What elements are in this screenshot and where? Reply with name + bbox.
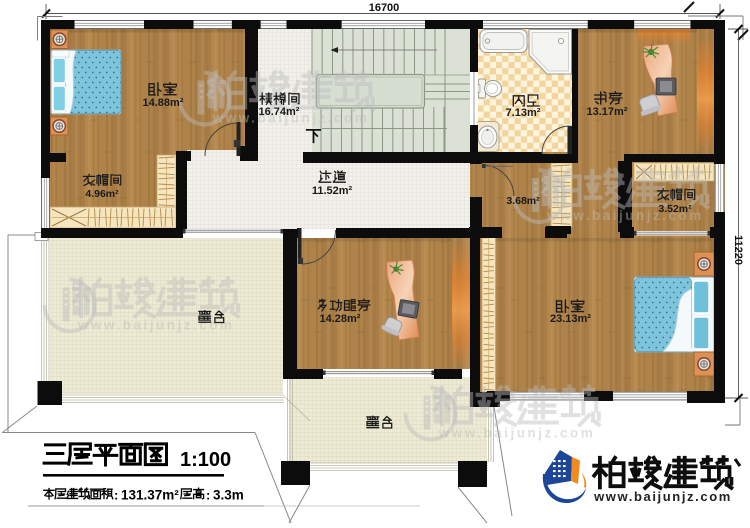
svg-text::: :: [206, 488, 210, 503]
svg-text:23.13m²: 23.13m²: [550, 313, 591, 325]
svg-text:1:100: 1:100: [180, 449, 231, 471]
svg-text:www.baijunjz.com: www.baijunjz.com: [593, 489, 732, 504]
svg-text:11220: 11220: [732, 235, 744, 265]
svg-text:3.3m: 3.3m: [213, 488, 244, 503]
svg-text:www.baijunjz.com: www.baijunjz.com: [438, 426, 596, 441]
svg-text:16700: 16700: [369, 2, 400, 14]
svg-text:14.28m²: 14.28m²: [320, 313, 361, 325]
svg-text:3.52m²: 3.52m²: [658, 203, 692, 215]
svg-text:131.37m²: 131.37m²: [121, 488, 179, 503]
svg-text:7.13m²: 7.13m²: [506, 107, 541, 119]
svg-text:3.68m²: 3.68m²: [506, 195, 540, 207]
svg-text:16.74m²: 16.74m²: [259, 106, 300, 118]
svg-text:13.17m²: 13.17m²: [587, 106, 628, 118]
svg-text::: :: [114, 488, 118, 503]
svg-text:14.88m²: 14.88m²: [143, 97, 184, 109]
svg-text:4.96m²: 4.96m²: [85, 188, 119, 200]
svg-text:11.52m²: 11.52m²: [312, 185, 353, 197]
